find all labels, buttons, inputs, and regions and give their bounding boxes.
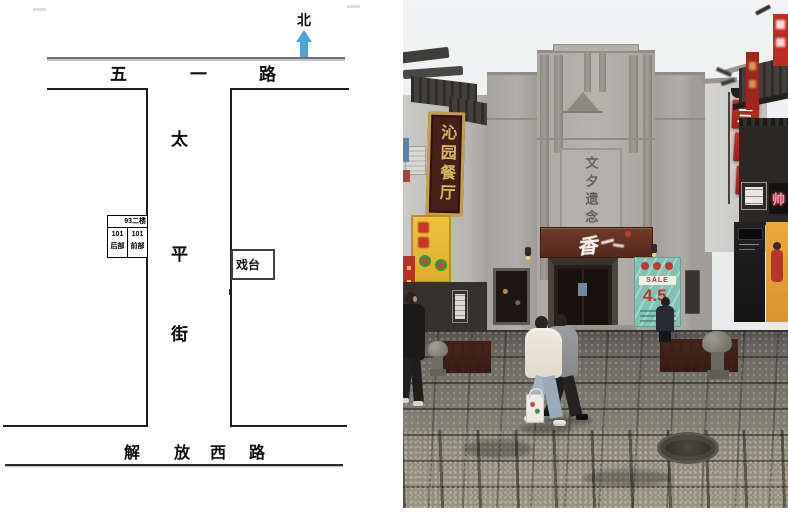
iron-sign-scroll (755, 4, 771, 15)
stage-tick-mark (229, 289, 231, 295)
left-block-top-edge (47, 88, 148, 90)
red-sign-sliver-top (773, 14, 788, 66)
snack-sign-char-block-1 (418, 222, 429, 233)
pavement-stain-1 (463, 440, 533, 458)
wall-lamp-left-glow (526, 256, 530, 260)
sign-bracket-pole (728, 92, 730, 204)
entrance-sign-red-seal (625, 231, 631, 237)
shopping-bag (526, 394, 544, 423)
red-sign-sliver-side (746, 52, 759, 110)
unit-101-front-number: 101 (128, 231, 147, 238)
pilaster-top-center-right (599, 52, 606, 92)
pavement-stain-2 (583, 470, 673, 486)
stage-box: 戏台 (231, 249, 275, 280)
jiefang-road-char-3: 西 (210, 439, 226, 463)
snack-sign-green-ring-2 (435, 259, 447, 271)
poster-sale-band: SALE (639, 276, 676, 285)
blue-sign-fragment (403, 138, 409, 162)
taiping-street-char-3: 街 (171, 320, 188, 345)
unit-101-rear-label: 后部 (108, 243, 127, 250)
stone-planter-right-base (707, 370, 729, 379)
red-banner-mark-1 (407, 266, 411, 270)
pedestrian-poster-viewer (655, 297, 677, 343)
unit-101-front-label: 前部 (128, 243, 147, 250)
red-sliver-char-4 (749, 80, 756, 88)
entrance-sign-calligraphy: 香 (576, 229, 598, 260)
cream-shadow (519, 424, 573, 434)
cornice-right-wing (655, 118, 705, 120)
manhole-cover (657, 432, 719, 464)
snack-sign-green-ring-1 (419, 255, 431, 267)
restaurant-sign: 沁园餐厅 (426, 112, 466, 217)
cream-body (525, 328, 562, 378)
left-ped-leg-2 (410, 358, 424, 403)
triangle-emblem-icon (566, 92, 600, 112)
map-figure: 北 五 一 路 太 平 街 93二楼 101 后部 101 前部 戏 (0, 0, 400, 527)
jiefang-road-line (5, 464, 343, 467)
kiosk-text-line-1 (739, 244, 759, 245)
left-ped-shoe-1 (403, 398, 409, 403)
right-block-top-edge (230, 88, 349, 90)
kiosk-screen (738, 228, 763, 240)
pavement-foreground-slabs (403, 430, 788, 508)
kiosk-text-line-2 (739, 249, 755, 250)
north-arrow-shaft (300, 41, 308, 58)
left-ped-face (413, 296, 417, 302)
poster-emblem-1 (641, 262, 649, 270)
door-notice (578, 283, 587, 296)
red-sliver-char-3 (749, 62, 756, 70)
pedestrian-left-black (403, 290, 431, 416)
unit-box-101-rear: 101 后部 (107, 227, 128, 258)
left-gable-roof-bar-1 (403, 47, 449, 64)
ad-figure-body (771, 250, 783, 282)
left-block-bottom-edge (3, 425, 148, 427)
taiping-street-char-1: 太 (171, 125, 188, 150)
left-ped-shoe-2 (413, 401, 423, 406)
snack-sign-char-block-2 (418, 237, 429, 248)
wall-lamp-right (651, 244, 657, 253)
cornice-tower (537, 138, 655, 140)
triangle-emblem-base (563, 111, 603, 113)
glow-sign: 帅 (769, 183, 788, 214)
stone-planter-left-bowl (428, 341, 448, 357)
text-boundary-mark-right (347, 5, 360, 8)
jiefang-road-char-4: 路 (249, 439, 265, 463)
stone-planter-right-stem (711, 352, 724, 370)
right-pier-plaque (685, 270, 700, 314)
unit-box-93-label: 93二楼 (124, 218, 146, 225)
shopping-bag-handle (529, 388, 543, 398)
ad-figure-hair (773, 242, 781, 250)
railing-left (441, 341, 491, 373)
stone-planter-left-base (430, 369, 446, 376)
poster-emblem-3 (665, 262, 673, 270)
kiosk-machine (734, 222, 765, 322)
taiping-street-char-2: 平 (171, 240, 188, 265)
wuyi-road-char-1: 五 (110, 60, 127, 85)
poster-sale-label: SALE (646, 277, 669, 284)
entrance-sign: 香 (540, 227, 653, 258)
red-sliver-char-1 (776, 20, 785, 29)
right-block-bottom-edge (230, 425, 347, 427)
jiefang-road-char-2: 放 (174, 439, 190, 463)
small-red-sign-fragment (403, 170, 410, 182)
right-white-sign (741, 182, 767, 210)
unit-101-rear-number: 101 (108, 231, 127, 238)
jeans-leg-front (542, 375, 563, 419)
cornice-left-wing (487, 118, 537, 120)
entrance-sign-stroke-2 (613, 243, 624, 248)
wuyi-road-char-2: 一 (190, 60, 207, 85)
street-photo: 沁园餐厅 (403, 0, 788, 508)
wuyi-road-char-3: 路 (259, 60, 276, 85)
tower-top-cap (553, 44, 639, 52)
viewer-body (656, 306, 674, 332)
text-boundary-mark-left (33, 8, 46, 11)
document-page: 北 五 一 路 太 平 街 93二楼 101 后部 101 前部 戏 (0, 0, 788, 527)
glow-sign-char: 帅 (772, 189, 785, 208)
stage-label: 戏台 (236, 256, 260, 273)
north-label: 北 (297, 10, 311, 30)
jiefang-road-char-1: 解 (124, 439, 140, 463)
unit-box-101-front: 101 前部 (127, 227, 148, 258)
yellow-ad-poster (766, 222, 788, 322)
wall-lamp-left (525, 247, 531, 256)
stone-planter-right-bowl (702, 331, 732, 353)
pilaster-top-center-left (584, 52, 591, 92)
menu-board (452, 290, 468, 323)
red-sliver-char-2 (776, 38, 785, 47)
facade-inscription: 文夕遗念 (579, 156, 603, 232)
viewer-legs (659, 331, 671, 342)
restaurant-sign-text: 沁园餐厅 (432, 124, 458, 205)
left-ped-torso (403, 304, 425, 360)
snack-sign (411, 215, 451, 283)
pedestrian-cream-jacket (523, 316, 569, 432)
poster-emblem-2 (653, 262, 661, 270)
stone-planter-left-stem (433, 356, 443, 369)
facade-inscription-text: 文夕遗念 (582, 156, 601, 232)
eave-fringe (739, 118, 788, 126)
